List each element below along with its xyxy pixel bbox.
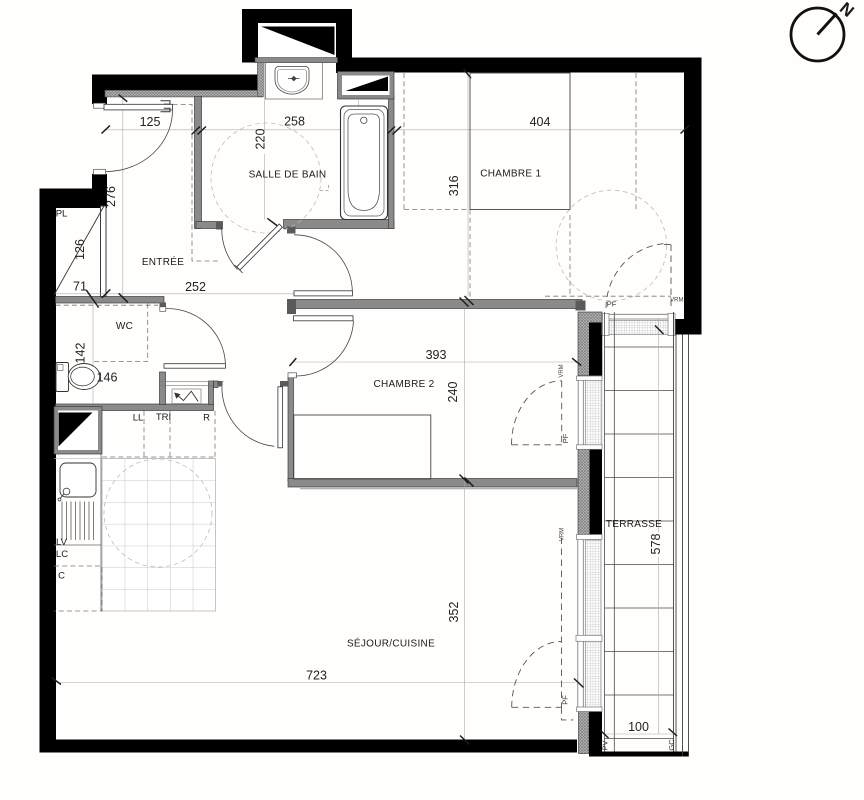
svg-text:404: 404 xyxy=(530,115,551,129)
svg-text:578: 578 xyxy=(649,534,663,555)
svg-text:220: 220 xyxy=(254,129,268,150)
svg-text:316: 316 xyxy=(447,175,461,196)
svg-text:125: 125 xyxy=(140,115,161,129)
svg-text:PF: PF xyxy=(560,695,569,705)
svg-text:VRM: VRM xyxy=(560,528,566,541)
svg-text:TERRASSE: TERRASSE xyxy=(606,519,662,530)
svg-text:LV: LV xyxy=(56,537,68,548)
svg-text:C: C xyxy=(58,571,65,582)
svg-text:WC: WC xyxy=(116,321,133,332)
svg-text:TRI: TRI xyxy=(156,412,171,423)
svg-text:ENTRÉE: ENTRÉE xyxy=(142,255,184,268)
svg-text:LC: LC xyxy=(56,549,68,560)
svg-text:126: 126 xyxy=(73,239,87,260)
svg-text:LL: LL xyxy=(133,413,144,424)
svg-text:393: 393 xyxy=(426,348,447,362)
svg-text:CHAMBRE 1: CHAMBRE 1 xyxy=(480,169,541,180)
svg-text:723: 723 xyxy=(306,669,327,683)
svg-text:SÉJOUR/CUISINE: SÉJOUR/CUISINE xyxy=(347,637,435,650)
svg-text:258: 258 xyxy=(284,115,305,129)
svg-text:352: 352 xyxy=(447,602,461,623)
svg-text:142: 142 xyxy=(74,343,88,364)
svg-text:SALLE DE BAIN: SALLE DE BAIN xyxy=(249,170,327,181)
svg-text:PF: PF xyxy=(607,300,617,309)
svg-text:CHAMBRE 2: CHAMBRE 2 xyxy=(373,379,434,390)
svg-text:PF: PF xyxy=(561,433,570,443)
svg-text:146: 146 xyxy=(97,371,118,385)
svg-text:71: 71 xyxy=(73,280,87,294)
svg-text:276: 276 xyxy=(104,186,118,207)
svg-text:VRM: VRM xyxy=(559,364,565,377)
svg-text:GC: GC xyxy=(667,739,676,751)
svg-text:PV: PV xyxy=(601,740,610,750)
svg-text:R: R xyxy=(203,413,210,424)
svg-text:252: 252 xyxy=(185,280,206,294)
svg-text:240: 240 xyxy=(446,382,460,403)
svg-text:PL: PL xyxy=(56,209,68,220)
svg-text:VRM: VRM xyxy=(670,298,683,304)
svg-text:100: 100 xyxy=(628,720,649,734)
